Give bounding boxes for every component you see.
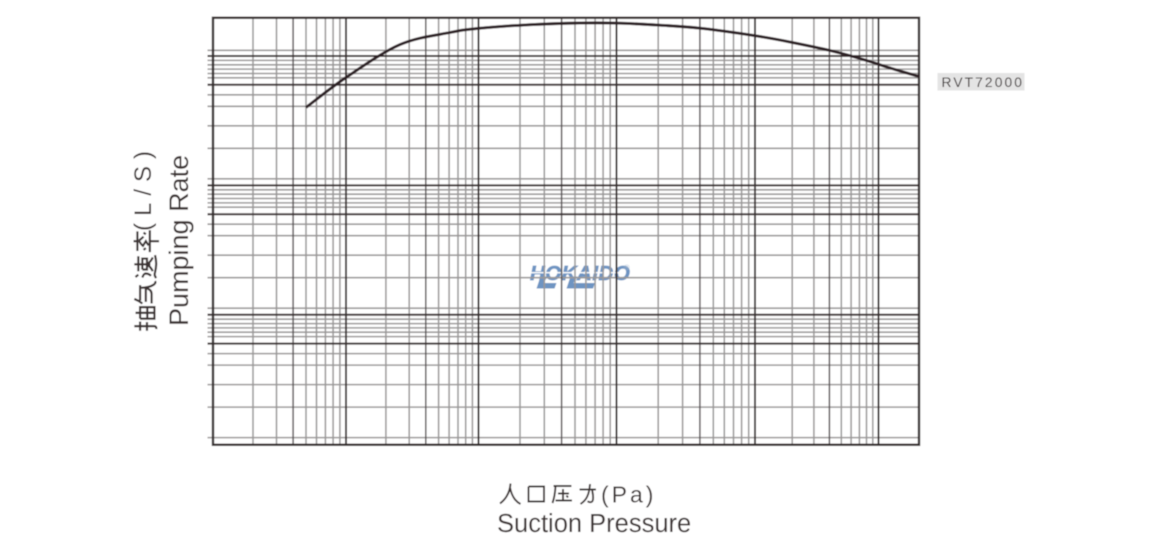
svg-text:Pumping Rate: Pumping Rate [164, 155, 194, 326]
svg-text:(Pa): (Pa) [601, 482, 656, 508]
svg-text:(L/S): (L/S) [130, 144, 157, 231]
svg-text:RVT72000: RVT72000 [942, 75, 1025, 90]
svg-text:Suction Pressure: Suction Pressure [497, 510, 691, 538]
svg-text:®: ® [624, 263, 630, 272]
